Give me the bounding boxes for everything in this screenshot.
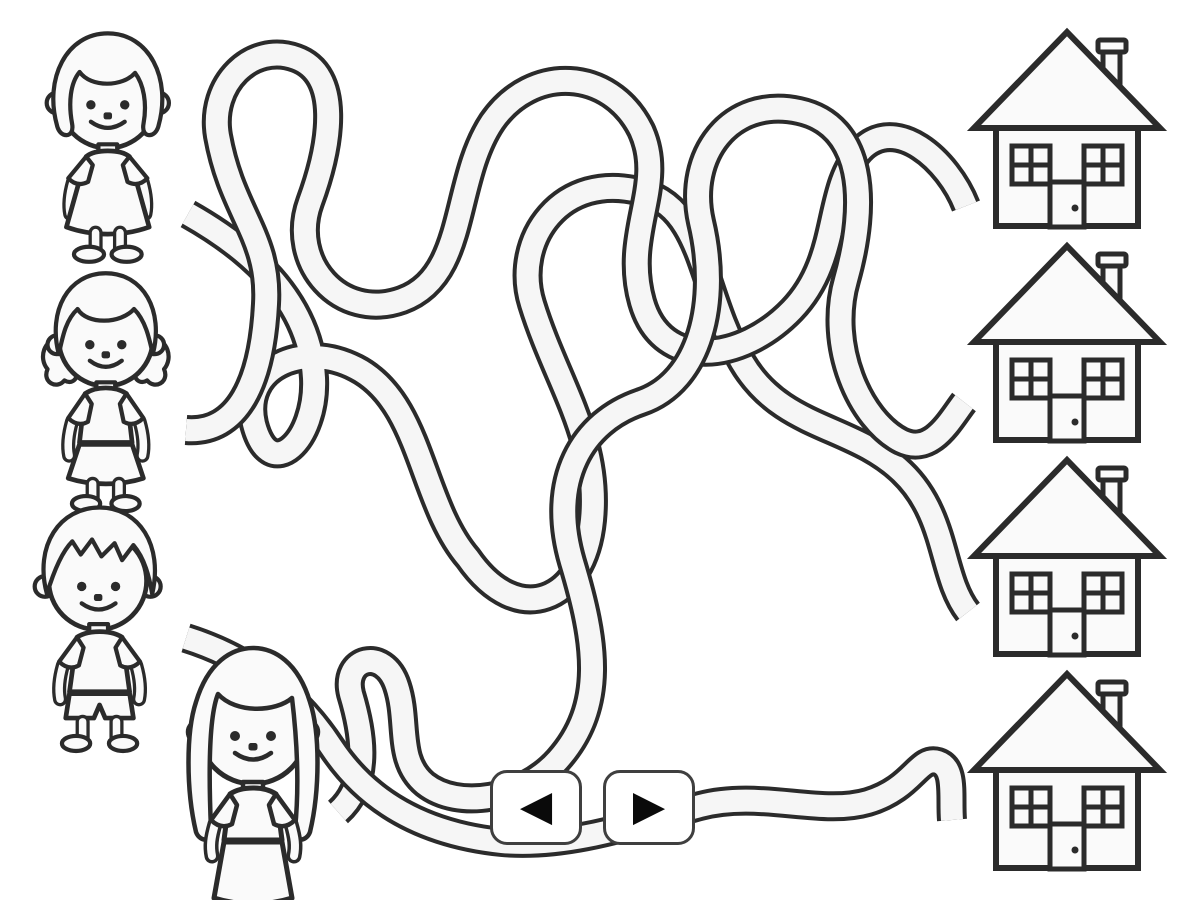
sleeve-left <box>211 794 237 826</box>
shoe-left <box>74 247 104 262</box>
eye-right <box>120 100 129 109</box>
shorts <box>66 694 134 718</box>
sleeve-right <box>120 394 144 424</box>
house-figure-3 <box>974 460 1160 655</box>
house-figure-1 <box>974 32 1160 227</box>
sleeve-left <box>68 157 92 184</box>
shoe-right <box>112 247 142 262</box>
nose <box>102 351 110 358</box>
house-figure-2 <box>974 246 1160 441</box>
eye-left <box>77 582 86 591</box>
sleeve-left <box>59 637 83 667</box>
nose <box>104 112 112 119</box>
eye-left <box>85 340 94 349</box>
nose <box>249 743 258 751</box>
child-figure-3 <box>35 508 161 751</box>
next-page-button[interactable]: ▶ <box>603 770 695 845</box>
eye-right <box>117 340 126 349</box>
arrow-right-icon: ▶ <box>633 785 665 827</box>
worksheet-canvas <box>0 0 1200 900</box>
child-figure-4 <box>188 648 318 900</box>
nose <box>94 594 102 601</box>
eye-right <box>111 582 120 591</box>
shoe-right <box>109 736 137 751</box>
house-figure-4 <box>974 674 1160 869</box>
eye-left <box>230 731 240 741</box>
sleeve-right <box>269 794 295 826</box>
child-figure-1 <box>47 33 169 261</box>
worksheet-screen: ◀ ▶ <box>0 0 1200 900</box>
sleeve-left <box>68 394 92 424</box>
skirt <box>68 444 143 483</box>
eye-right <box>266 731 276 741</box>
prev-page-button[interactable]: ◀ <box>490 770 582 845</box>
shoe-left <box>62 736 90 751</box>
arrow-left-icon: ◀ <box>520 785 552 827</box>
sleeve-right <box>116 637 140 667</box>
sleeve-right <box>123 157 147 184</box>
eye-left <box>86 100 95 109</box>
child-figure-2 <box>43 273 169 511</box>
skirt <box>214 842 292 900</box>
